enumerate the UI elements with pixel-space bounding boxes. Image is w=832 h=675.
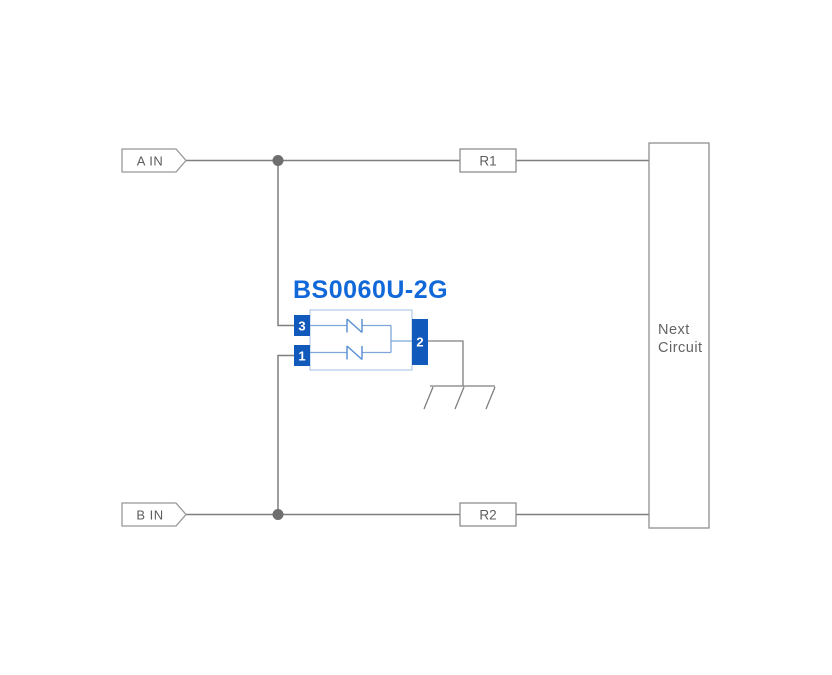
wire-net-b (186, 356, 649, 515)
resistor-r2-label: R2 (479, 508, 496, 523)
junction-dot-net-a (273, 155, 284, 166)
pin-2-label: 2 (416, 335, 423, 350)
ground-net (424, 341, 495, 409)
port-tag-a-in: A IN (122, 149, 186, 172)
schematic-canvas: A IN B IN R1 R2 Next Circuit BS0060U-2G (0, 0, 832, 675)
component-title: BS0060U-2G (293, 276, 448, 304)
pin-3-label: 3 (298, 319, 305, 334)
next-circuit-label-line2: Circuit (658, 340, 703, 356)
component-pin-2: 2 (412, 319, 428, 365)
component-pin-3: 3 (294, 315, 310, 336)
resistor-r1-label: R1 (479, 154, 496, 169)
pin-1-label: 1 (298, 349, 305, 364)
port-tag-b-in: B IN (122, 503, 186, 526)
ground-symbol (424, 386, 495, 409)
component-body (310, 310, 412, 370)
component-pin-1: 1 (294, 345, 310, 366)
port-tag-a-label: A IN (137, 154, 164, 169)
resistor-r2: R2 (460, 503, 516, 526)
junction-dot-net-b (273, 509, 284, 520)
resistor-r1: R1 (460, 149, 516, 172)
circuit-schematic: A IN B IN R1 R2 Next Circuit BS0060U-2G (0, 0, 832, 675)
esd-component: BS0060U-2G (293, 276, 448, 370)
next-circuit-label-line1: Next (658, 322, 690, 338)
wire-pin2-to-ground (428, 341, 463, 386)
port-tag-b-label: B IN (136, 508, 163, 523)
next-circuit-block: Next Circuit (649, 143, 709, 528)
